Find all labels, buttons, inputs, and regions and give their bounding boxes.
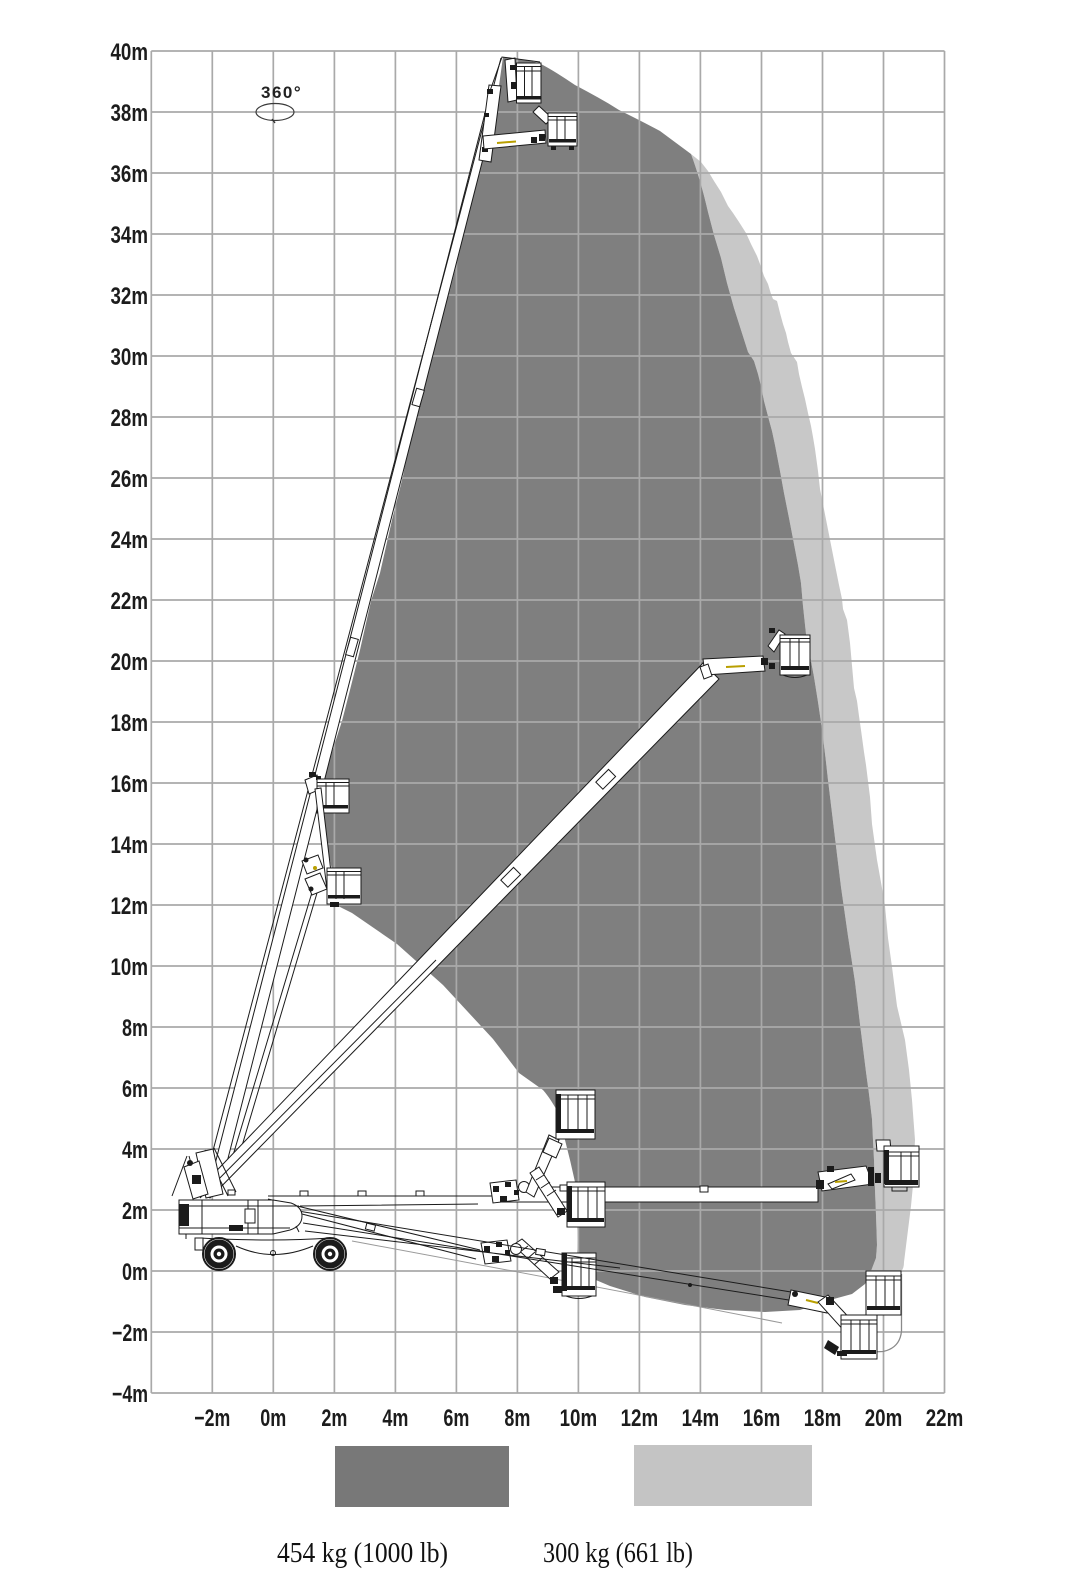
svg-text:10m: 10m <box>560 1405 598 1432</box>
svg-text:4m: 4m <box>382 1405 408 1432</box>
svg-text:26m: 26m <box>111 466 149 493</box>
svg-text:6m: 6m <box>443 1405 469 1432</box>
svg-text:38m: 38m <box>111 100 149 127</box>
svg-text:22m: 22m <box>926 1405 964 1432</box>
svg-text:6m: 6m <box>122 1076 148 1103</box>
svg-text:2m: 2m <box>321 1405 347 1432</box>
svg-text:40m: 40m <box>111 39 149 66</box>
svg-text:8m: 8m <box>504 1405 530 1432</box>
svg-text:14m: 14m <box>682 1405 720 1432</box>
svg-text:20m: 20m <box>111 649 149 676</box>
svg-text:16m: 16m <box>111 771 149 798</box>
svg-text:10m: 10m <box>111 954 149 981</box>
svg-text:24m: 24m <box>111 527 149 554</box>
svg-text:16m: 16m <box>743 1405 781 1432</box>
svg-text:18m: 18m <box>111 710 149 737</box>
svg-text:32m: 32m <box>111 283 149 310</box>
svg-text:−2m: −2m <box>194 1405 230 1432</box>
svg-text:28m: 28m <box>111 405 149 432</box>
svg-text:0m: 0m <box>260 1405 286 1432</box>
svg-text:12m: 12m <box>621 1405 659 1432</box>
svg-text:22m: 22m <box>111 588 149 615</box>
svg-text:−4m: −4m <box>112 1381 148 1408</box>
svg-text:14m: 14m <box>111 832 149 859</box>
svg-text:18m: 18m <box>804 1405 842 1432</box>
svg-text:300 kg (661 lb): 300 kg (661 lb) <box>543 1538 693 1569</box>
svg-text:8m: 8m <box>122 1015 148 1042</box>
svg-text:0m: 0m <box>122 1259 148 1286</box>
svg-text:−2m: −2m <box>112 1320 148 1347</box>
svg-text:2m: 2m <box>122 1198 148 1225</box>
svg-text:36m: 36m <box>111 161 149 188</box>
svg-text:12m: 12m <box>111 893 149 920</box>
svg-text:454 kg (1000 lb): 454 kg (1000 lb) <box>277 1538 448 1569</box>
svg-text:34m: 34m <box>111 222 149 249</box>
svg-text:360°: 360° <box>261 83 302 102</box>
svg-text:20m: 20m <box>865 1405 903 1432</box>
svg-text:30m: 30m <box>111 344 149 371</box>
svg-text:4m: 4m <box>122 1137 148 1164</box>
